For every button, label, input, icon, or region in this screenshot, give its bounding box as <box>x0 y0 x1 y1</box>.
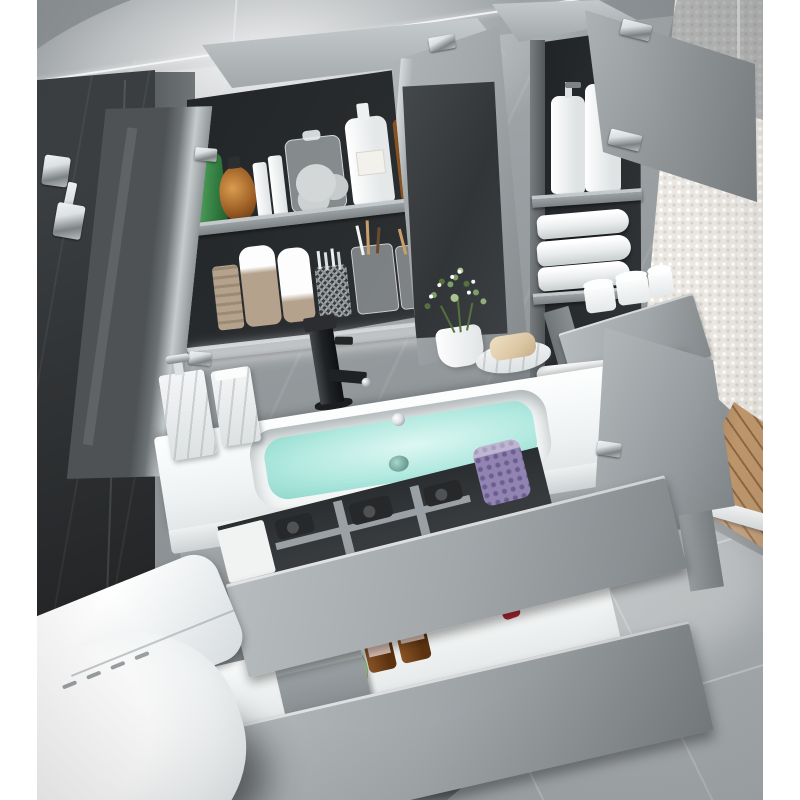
photo-margin-left <box>0 0 37 800</box>
towel-hook-bracket <box>41 154 71 187</box>
ceramic-bottle-white <box>276 246 316 323</box>
makeup-brush <box>366 220 370 254</box>
makeup-brush <box>355 225 364 255</box>
makeup-brush <box>376 227 381 253</box>
brush-tumbler <box>350 243 399 315</box>
toilet-button <box>110 661 125 670</box>
plant-stem <box>466 303 473 331</box>
cotton-ball-canister <box>284 134 348 214</box>
photo-content <box>37 0 763 800</box>
lotion-pump-bottle <box>344 115 396 207</box>
cream-jar <box>615 274 651 306</box>
bathroom-product-photo <box>0 0 800 800</box>
cream-jar <box>647 268 674 297</box>
hinge-icon <box>188 351 211 366</box>
ceramic-bottle-tan <box>238 244 283 328</box>
plant-leaves <box>447 281 454 288</box>
faucet-aerator <box>361 377 371 387</box>
cream-jar <box>583 282 617 314</box>
toilet-button <box>86 670 101 679</box>
brush <box>398 229 407 255</box>
plant-white-flowers <box>450 275 455 280</box>
toilet-button <box>134 651 149 660</box>
towel-hook-bracket-lower <box>52 202 85 240</box>
cotton-swab-basket <box>314 264 352 319</box>
faucet-handle <box>335 337 353 345</box>
hinge-icon <box>194 147 217 162</box>
photo-margin-right <box>763 0 800 800</box>
plant-stem <box>440 305 455 333</box>
plant-stem <box>457 296 462 332</box>
toilet-button <box>62 680 77 689</box>
white-pump-bottle <box>551 96 585 194</box>
